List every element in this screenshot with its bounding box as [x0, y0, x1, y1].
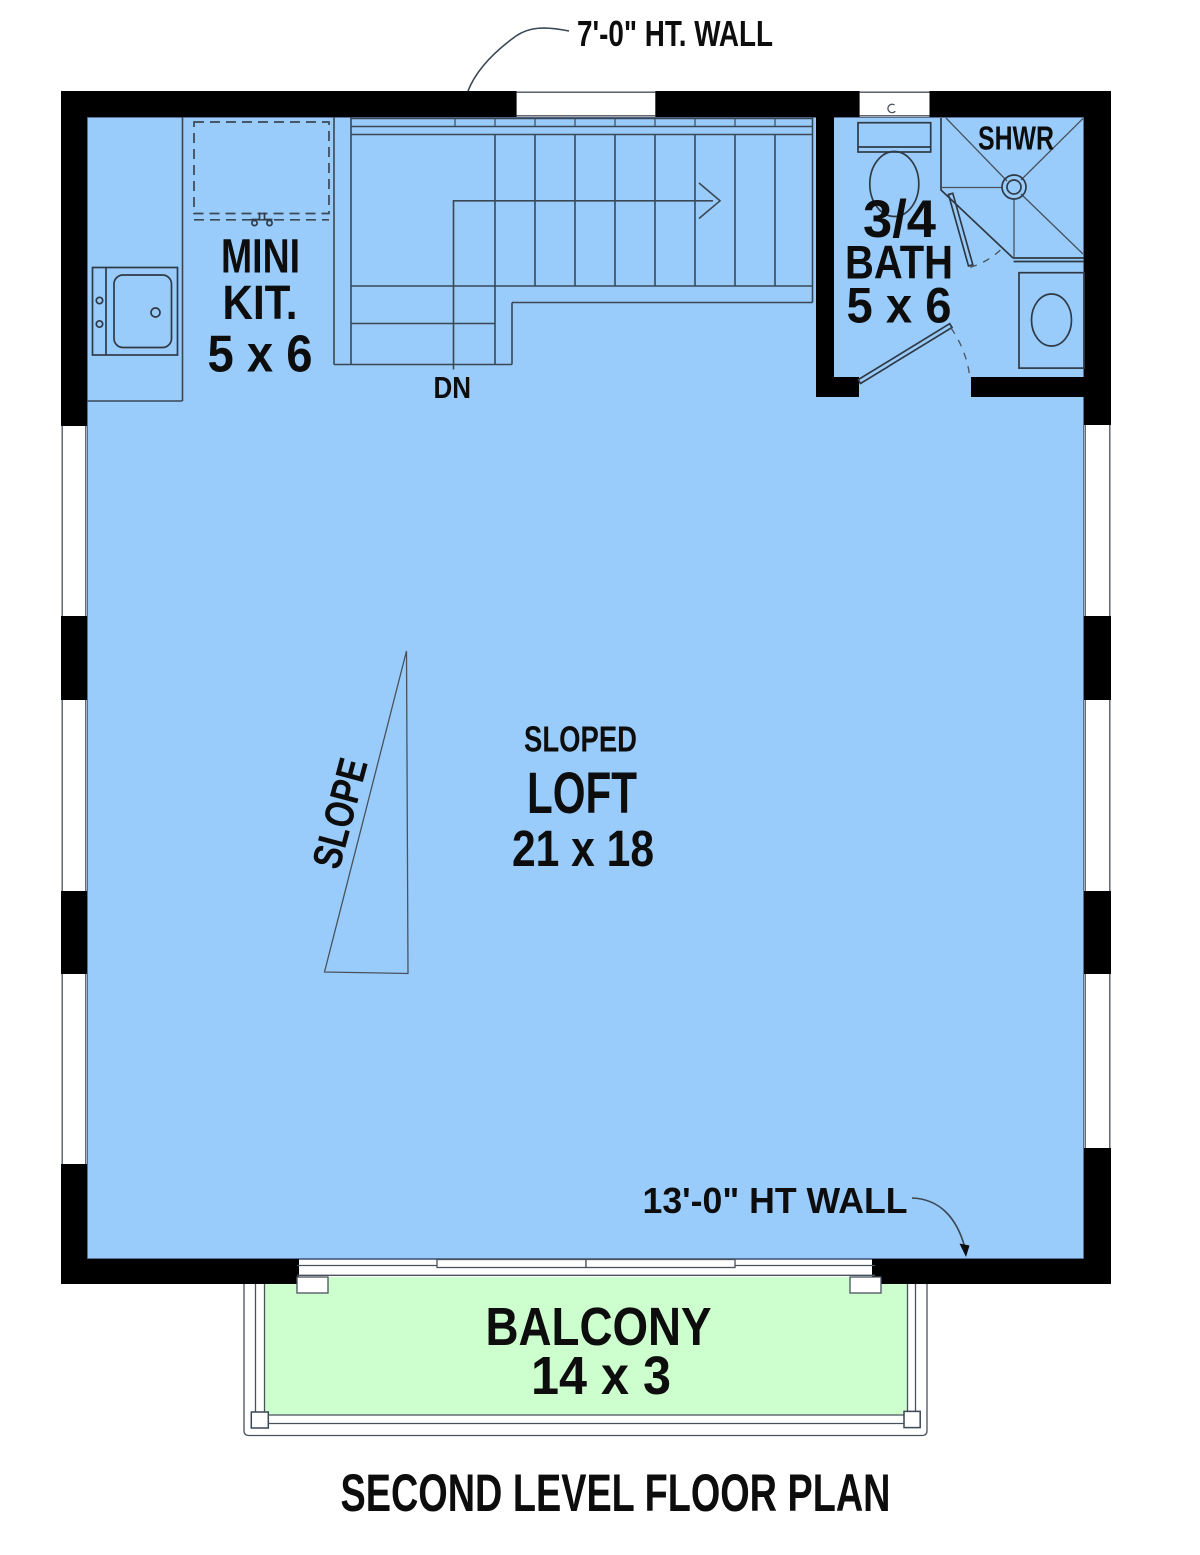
- svg-text:5 x 6: 5 x 6: [847, 278, 952, 334]
- svg-text:DN: DN: [434, 370, 472, 405]
- svg-text:SECOND LEVEL FLOOR PLAN: SECOND LEVEL FLOOR PLAN: [341, 1464, 891, 1523]
- svg-text:MINI: MINI: [221, 231, 300, 284]
- svg-text:7'-0" HT. WALL: 7'-0" HT. WALL: [577, 13, 773, 54]
- svg-text:13'-0" HT WALL: 13'-0" HT WALL: [643, 1180, 908, 1221]
- svg-text:14 x 3: 14 x 3: [531, 1346, 671, 1406]
- svg-text:LOFT: LOFT: [527, 761, 637, 826]
- svg-text:5 x 6: 5 x 6: [208, 326, 313, 384]
- svg-text:KIT.: KIT.: [223, 277, 298, 330]
- svg-text:SLOPED: SLOPED: [524, 719, 637, 760]
- svg-text:21 x 18: 21 x 18: [512, 820, 654, 877]
- svg-text:SHWR: SHWR: [978, 120, 1054, 157]
